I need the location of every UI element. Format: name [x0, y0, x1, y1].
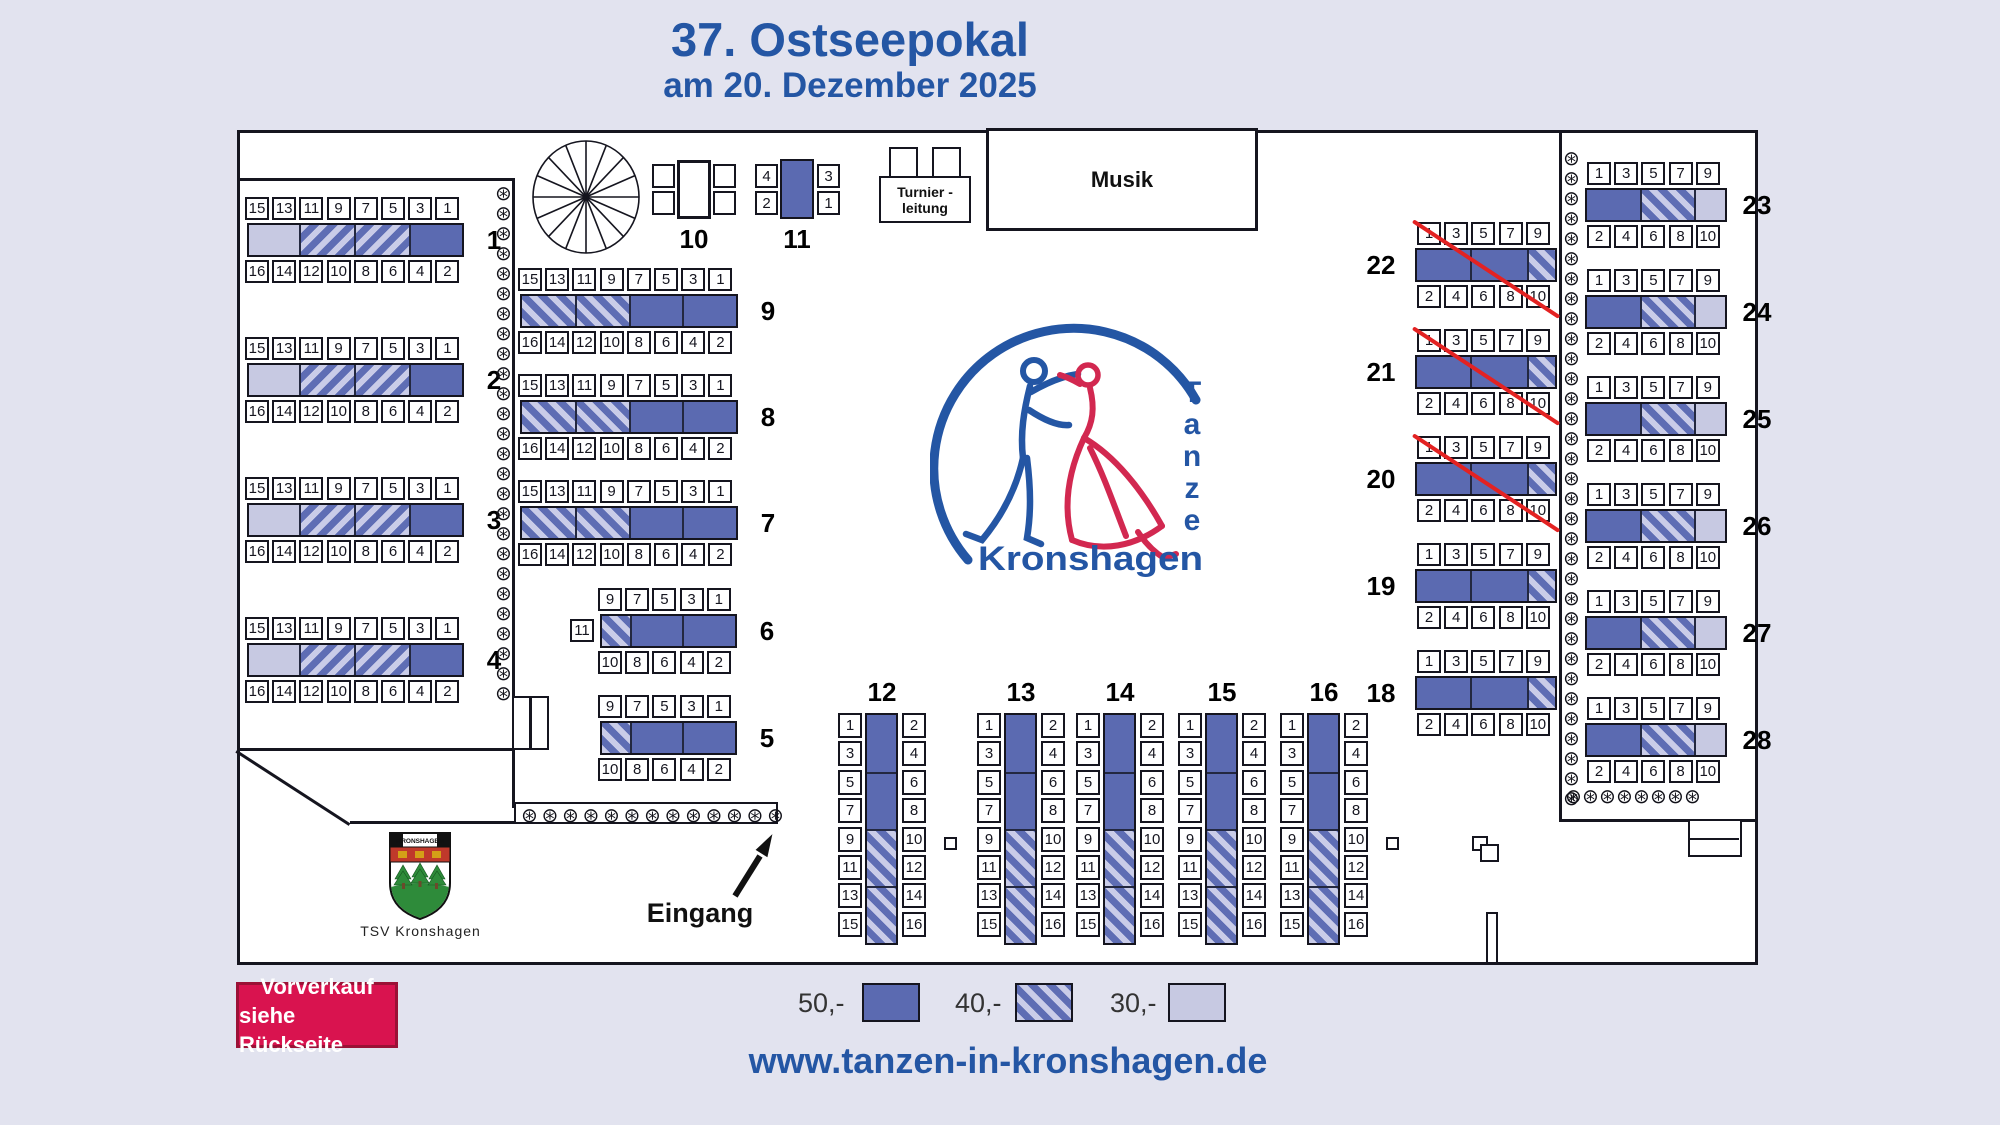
- seat[interactable]: 4: [1242, 741, 1266, 766]
- seat[interactable]: 10: [902, 827, 926, 852]
- seat[interactable]: 13: [1076, 883, 1100, 908]
- seat[interactable]: 3: [681, 480, 705, 503]
- seat[interactable]: 8: [627, 331, 651, 354]
- seat[interactable]: 1: [1280, 713, 1304, 738]
- seat[interactable]: 4: [1614, 760, 1638, 783]
- seat[interactable]: 15: [1178, 912, 1202, 937]
- seat[interactable]: 8: [1499, 713, 1523, 736]
- seat[interactable]: 6: [1641, 760, 1665, 783]
- seat[interactable]: 10: [1344, 827, 1368, 852]
- seat[interactable]: 15: [245, 197, 269, 220]
- seat[interactable]: 9: [600, 374, 624, 397]
- seat[interactable]: 3: [1444, 543, 1468, 566]
- seat[interactable]: 11: [572, 374, 596, 397]
- seat[interactable]: 6: [381, 260, 405, 283]
- seat[interactable]: 8: [1669, 332, 1693, 355]
- seat[interactable]: 8: [1041, 798, 1065, 823]
- seat[interactable]: 7: [354, 337, 378, 360]
- seat[interactable]: 10: [1696, 439, 1720, 462]
- seat[interactable]: 11: [299, 477, 323, 500]
- seat[interactable]: 12: [299, 260, 323, 283]
- seat[interactable]: 8: [1344, 798, 1368, 823]
- seat[interactable]: 13: [545, 374, 569, 397]
- seat[interactable]: 16: [1041, 912, 1065, 937]
- seat[interactable]: 1: [1587, 483, 1611, 506]
- seat[interactable]: 14: [545, 331, 569, 354]
- seat[interactable]: 2: [1587, 546, 1611, 569]
- seat[interactable]: 4: [1614, 439, 1638, 462]
- seat[interactable]: 6: [1041, 770, 1065, 795]
- seat[interactable]: 9: [1526, 436, 1550, 459]
- seat[interactable]: 3: [408, 197, 432, 220]
- seat[interactable]: 12: [299, 540, 323, 563]
- seat[interactable]: 5: [1471, 436, 1495, 459]
- seat[interactable]: 11: [1178, 855, 1202, 880]
- seat[interactable]: 13: [1280, 883, 1304, 908]
- seat[interactable]: 5: [1471, 222, 1495, 245]
- seat[interactable]: 11: [1280, 855, 1304, 880]
- seat[interactable]: 7: [977, 798, 1001, 823]
- seat[interactable]: 10: [1041, 827, 1065, 852]
- seat[interactable]: 2: [1417, 499, 1441, 522]
- seat[interactable]: 14: [272, 260, 296, 283]
- seat[interactable]: 15: [518, 480, 542, 503]
- seat[interactable]: 4: [1444, 285, 1468, 308]
- seat[interactable]: 10: [1140, 827, 1164, 852]
- seat[interactable]: 9: [977, 827, 1001, 852]
- seat[interactable]: 3: [681, 374, 705, 397]
- seat[interactable]: 16: [518, 543, 542, 566]
- seat[interactable]: 13: [272, 477, 296, 500]
- seat[interactable]: 4: [1444, 713, 1468, 736]
- seat[interactable]: 5: [654, 374, 678, 397]
- seat[interactable]: 4: [681, 437, 705, 460]
- seat[interactable]: 11: [572, 480, 596, 503]
- seat[interactable]: 5: [381, 477, 405, 500]
- seat[interactable]: 9: [1076, 827, 1100, 852]
- seat[interactable]: 15: [518, 268, 542, 291]
- seat[interactable]: 3: [1444, 650, 1468, 673]
- seat[interactable]: 9: [1696, 697, 1720, 720]
- seat[interactable]: 6: [1641, 546, 1665, 569]
- seat[interactable]: 4: [1140, 741, 1164, 766]
- seat[interactable]: 9: [327, 617, 351, 640]
- seat[interactable]: 2: [708, 437, 732, 460]
- seat[interactable]: 9: [1526, 650, 1550, 673]
- seat[interactable]: 5: [381, 197, 405, 220]
- seat[interactable]: 6: [381, 400, 405, 423]
- seat[interactable]: 1: [435, 197, 459, 220]
- seat[interactable]: 12: [572, 437, 596, 460]
- seat[interactable]: 10: [1696, 546, 1720, 569]
- seat[interactable]: 2: [435, 680, 459, 703]
- seat[interactable]: 9: [1696, 590, 1720, 613]
- seat[interactable]: 6: [902, 770, 926, 795]
- seat[interactable]: 7: [1499, 543, 1523, 566]
- seat[interactable]: 5: [1076, 770, 1100, 795]
- seat[interactable]: 3: [408, 617, 432, 640]
- seat[interactable]: 10: [1526, 499, 1550, 522]
- seat[interactable]: 8: [902, 798, 926, 823]
- seat[interactable]: 7: [627, 268, 651, 291]
- seat[interactable]: 10: [1696, 225, 1720, 248]
- seat[interactable]: 7: [627, 374, 651, 397]
- seat[interactable]: 8: [354, 540, 378, 563]
- seat[interactable]: 4: [1444, 606, 1468, 629]
- seat[interactable]: 6: [1641, 332, 1665, 355]
- seat[interactable]: 15: [245, 617, 269, 640]
- seat[interactable]: 3: [408, 477, 432, 500]
- seat[interactable]: 7: [625, 588, 649, 611]
- seat[interactable]: 2: [1587, 653, 1611, 676]
- seat[interactable]: 8: [354, 400, 378, 423]
- seat[interactable]: 6: [654, 543, 678, 566]
- seat[interactable]: 4: [408, 260, 432, 283]
- seat[interactable]: 5: [654, 480, 678, 503]
- seat[interactable]: 5: [654, 268, 678, 291]
- seat[interactable]: 2: [1587, 332, 1611, 355]
- seat[interactable]: 1: [1587, 376, 1611, 399]
- seat[interactable]: 6: [381, 680, 405, 703]
- seat[interactable]: 1: [1587, 269, 1611, 292]
- seat[interactable]: 4: [408, 540, 432, 563]
- seat[interactable]: 3: [1444, 222, 1468, 245]
- seat[interactable]: 9: [1280, 827, 1304, 852]
- seat[interactable]: 6: [381, 540, 405, 563]
- seat[interactable]: 3: [680, 695, 704, 718]
- seat[interactable]: 5: [1641, 376, 1665, 399]
- seat[interactable]: 5: [1471, 543, 1495, 566]
- seat[interactable]: 16: [1242, 912, 1266, 937]
- seat[interactable]: 9: [327, 197, 351, 220]
- seat[interactable]: 6: [1242, 770, 1266, 795]
- seat[interactable]: 8: [354, 680, 378, 703]
- seat[interactable]: 12: [572, 331, 596, 354]
- seat[interactable]: 14: [1242, 883, 1266, 908]
- seat[interactable]: 7: [354, 617, 378, 640]
- seat[interactable]: 7: [627, 480, 651, 503]
- seat[interactable]: 3: [1614, 697, 1638, 720]
- seat[interactable]: 5: [652, 588, 676, 611]
- seat[interactable]: 7: [1499, 436, 1523, 459]
- seat[interactable]: 6: [1471, 392, 1495, 415]
- seat[interactable]: 6: [1471, 606, 1495, 629]
- seat[interactable]: 3: [1614, 269, 1638, 292]
- seat[interactable]: 3: [1076, 741, 1100, 766]
- seat[interactable]: 2: [1587, 439, 1611, 462]
- seat[interactable]: 14: [902, 883, 926, 908]
- seat[interactable]: 1: [838, 713, 862, 738]
- seat[interactable]: 9: [1526, 222, 1550, 245]
- seat[interactable]: 13: [545, 268, 569, 291]
- seat[interactable]: 15: [977, 912, 1001, 937]
- seat[interactable]: 1: [435, 477, 459, 500]
- seat[interactable]: 15: [1280, 912, 1304, 937]
- seat[interactable]: 5: [1178, 770, 1202, 795]
- seat[interactable]: 7: [1076, 798, 1100, 823]
- seat[interactable]: 7: [1669, 697, 1693, 720]
- seat[interactable]: 8: [1499, 606, 1523, 629]
- seat[interactable]: 14: [272, 680, 296, 703]
- seat[interactable]: 10: [1696, 653, 1720, 676]
- seat[interactable]: 5: [381, 337, 405, 360]
- seat[interactable]: 1: [707, 588, 731, 611]
- seat[interactable]: 4: [408, 400, 432, 423]
- seat[interactable]: 14: [1140, 883, 1164, 908]
- seat[interactable]: 2: [708, 331, 732, 354]
- seat[interactable]: 7: [1669, 483, 1693, 506]
- seat[interactable]: 15: [245, 337, 269, 360]
- seat[interactable]: 4: [1444, 392, 1468, 415]
- seat[interactable]: 8: [1669, 439, 1693, 462]
- seat[interactable]: 12: [902, 855, 926, 880]
- seat[interactable]: 16: [245, 540, 269, 563]
- seat[interactable]: 5: [1471, 650, 1495, 673]
- seat[interactable]: 7: [1669, 590, 1693, 613]
- seat[interactable]: 3: [1178, 741, 1202, 766]
- seat[interactable]: 4: [408, 680, 432, 703]
- seat[interactable]: 16: [1344, 912, 1368, 937]
- seat[interactable]: 3: [1614, 483, 1638, 506]
- seat[interactable]: 1: [708, 480, 732, 503]
- seat[interactable]: 10: [1526, 606, 1550, 629]
- seat[interactable]: 13: [1178, 883, 1202, 908]
- seat[interactable]: 1: [707, 695, 731, 718]
- seat[interactable]: 10: [1696, 332, 1720, 355]
- seat[interactable]: 10: [598, 758, 622, 781]
- seat[interactable]: 13: [545, 480, 569, 503]
- seat[interactable]: 14: [545, 543, 569, 566]
- seat[interactable]: 7: [354, 477, 378, 500]
- seat[interactable]: 2: [1587, 760, 1611, 783]
- seat[interactable]: 9: [838, 827, 862, 852]
- seat[interactable]: 7: [1280, 798, 1304, 823]
- seat[interactable]: 10: [600, 331, 624, 354]
- seat[interactable]: 4: [1344, 741, 1368, 766]
- seat[interactable]: 16: [1140, 912, 1164, 937]
- seat[interactable]: 7: [1178, 798, 1202, 823]
- seat[interactable]: 8: [627, 437, 651, 460]
- seat[interactable]: 1: [1587, 697, 1611, 720]
- seat[interactable]: 11: [838, 855, 862, 880]
- seat[interactable]: 7: [838, 798, 862, 823]
- seat[interactable]: 6: [1140, 770, 1164, 795]
- seat[interactable]: 11: [977, 855, 1001, 880]
- seat[interactable]: 16: [518, 437, 542, 460]
- seat[interactable]: 1: [708, 374, 732, 397]
- seat[interactable]: 2: [708, 543, 732, 566]
- seat[interactable]: 3: [1614, 162, 1638, 185]
- seat[interactable]: 9: [600, 480, 624, 503]
- seat[interactable]: 16: [245, 260, 269, 283]
- seat[interactable]: 15: [1076, 912, 1100, 937]
- seat[interactable]: 9: [327, 337, 351, 360]
- seat[interactable]: 10: [1526, 392, 1550, 415]
- seat[interactable]: 14: [272, 540, 296, 563]
- seat[interactable]: 6: [1471, 713, 1495, 736]
- seat[interactable]: 9: [1178, 827, 1202, 852]
- seat[interactable]: 10: [1696, 760, 1720, 783]
- seat[interactable]: 7: [1669, 376, 1693, 399]
- seat[interactable]: 6: [1471, 499, 1495, 522]
- seat[interactable]: 4: [1614, 225, 1638, 248]
- seat[interactable]: 4: [1041, 741, 1065, 766]
- seat[interactable]: 12: [1140, 855, 1164, 880]
- seat[interactable]: 7: [1499, 329, 1523, 352]
- seat[interactable]: 1: [1587, 162, 1611, 185]
- seat[interactable]: 6: [654, 331, 678, 354]
- seat[interactable]: 7: [1499, 650, 1523, 673]
- seat[interactable]: 9: [1526, 543, 1550, 566]
- seat[interactable]: 1: [435, 617, 459, 640]
- seat[interactable]: 15: [518, 374, 542, 397]
- seat[interactable]: 14: [1344, 883, 1368, 908]
- seat[interactable]: 10: [598, 651, 622, 674]
- seat[interactable]: 7: [625, 695, 649, 718]
- seat[interactable]: 1: [1076, 713, 1100, 738]
- seat[interactable]: 5: [838, 770, 862, 795]
- seat[interactable]: 14: [272, 400, 296, 423]
- seat[interactable]: 11: [572, 268, 596, 291]
- seat[interactable]: 2: [1242, 713, 1266, 738]
- seat[interactable]: 4: [902, 741, 926, 766]
- seat[interactable]: 9: [1696, 269, 1720, 292]
- seat[interactable]: 10: [600, 543, 624, 566]
- seat[interactable]: 5: [1280, 770, 1304, 795]
- seat[interactable]: 7: [1669, 162, 1693, 185]
- seat[interactable]: 3: [1614, 590, 1638, 613]
- seat[interactable]: 10: [327, 680, 351, 703]
- seat[interactable]: 16: [902, 912, 926, 937]
- seat[interactable]: 5: [1641, 590, 1665, 613]
- seat[interactable]: 6: [1641, 225, 1665, 248]
- seat[interactable]: 3: [1444, 329, 1468, 352]
- seat[interactable]: 4: [1614, 653, 1638, 676]
- seat[interactable]: 8: [627, 543, 651, 566]
- seat[interactable]: 4: [1614, 332, 1638, 355]
- seat[interactable]: 13: [838, 883, 862, 908]
- seat[interactable]: 10: [327, 540, 351, 563]
- seat[interactable]: 1: [708, 268, 732, 291]
- seat[interactable]: 2: [1417, 392, 1441, 415]
- seat[interactable]: 4: [680, 651, 704, 674]
- seat[interactable]: 6: [652, 758, 676, 781]
- seat[interactable]: 9: [598, 588, 622, 611]
- seat[interactable]: 12: [1344, 855, 1368, 880]
- seat[interactable]: 9: [1526, 329, 1550, 352]
- seat[interactable]: 8: [1669, 653, 1693, 676]
- seat[interactable]: 5: [652, 695, 676, 718]
- seat[interactable]: 3: [408, 337, 432, 360]
- seat[interactable]: 12: [299, 400, 323, 423]
- seat[interactable]: 2: [1140, 713, 1164, 738]
- seat[interactable]: 3: [1614, 376, 1638, 399]
- seat[interactable]: 6: [1344, 770, 1368, 795]
- seat[interactable]: 1: [1417, 329, 1441, 352]
- seat[interactable]: 1: [1417, 543, 1441, 566]
- seat[interactable]: 16: [245, 400, 269, 423]
- seat[interactable]: 4: [680, 758, 704, 781]
- seat[interactable]: 9: [1696, 376, 1720, 399]
- seat[interactable]: 14: [1041, 883, 1065, 908]
- seat[interactable]: 3: [1280, 741, 1304, 766]
- seat[interactable]: 13: [272, 337, 296, 360]
- seat[interactable]: 10: [600, 437, 624, 460]
- seat[interactable]: 7: [354, 197, 378, 220]
- seat[interactable]: 13: [272, 617, 296, 640]
- seat[interactable]: 12: [1041, 855, 1065, 880]
- seat[interactable]: 12: [299, 680, 323, 703]
- seat[interactable]: 5: [1641, 483, 1665, 506]
- seat[interactable]: 6: [1641, 653, 1665, 676]
- seat[interactable]: 5: [1641, 162, 1665, 185]
- seat[interactable]: 5: [977, 770, 1001, 795]
- seat[interactable]: 8: [1669, 225, 1693, 248]
- seat[interactable]: 8: [1669, 546, 1693, 569]
- seat[interactable]: 2: [1417, 285, 1441, 308]
- seat[interactable]: 8: [354, 260, 378, 283]
- seat[interactable]: 11: [299, 617, 323, 640]
- seat[interactable]: 5: [381, 617, 405, 640]
- seat[interactable]: 2: [902, 713, 926, 738]
- seat[interactable]: 2: [1041, 713, 1065, 738]
- seat[interactable]: 13: [977, 883, 1001, 908]
- seat[interactable]: 11: [1076, 855, 1100, 880]
- seat[interactable]: 11: [299, 337, 323, 360]
- seat[interactable]: 2: [435, 260, 459, 283]
- seat[interactable]: 4: [1444, 499, 1468, 522]
- seat[interactable]: 2: [707, 651, 731, 674]
- seat[interactable]: 3: [680, 588, 704, 611]
- seat[interactable]: 1: [1178, 713, 1202, 738]
- seat[interactable]: 14: [545, 437, 569, 460]
- seat[interactable]: 3: [681, 268, 705, 291]
- seat[interactable]: 2: [707, 758, 731, 781]
- seat[interactable]: 1: [435, 337, 459, 360]
- seat[interactable]: 2: [1344, 713, 1368, 738]
- seat[interactable]: 8: [1242, 798, 1266, 823]
- seat[interactable]: 1: [1587, 590, 1611, 613]
- seat[interactable]: 3: [977, 741, 1001, 766]
- seat[interactable]: 10: [327, 400, 351, 423]
- seat[interactable]: 3: [1444, 436, 1468, 459]
- seat[interactable]: 4: [681, 543, 705, 566]
- seat[interactable]: 8: [1499, 499, 1523, 522]
- seat[interactable]: 13: [272, 197, 296, 220]
- seat[interactable]: 10: [1526, 285, 1550, 308]
- seat[interactable]: 2: [1417, 713, 1441, 736]
- seat[interactable]: 8: [1140, 798, 1164, 823]
- seat[interactable]: 7: [1499, 222, 1523, 245]
- seat[interactable]: 8: [625, 758, 649, 781]
- seat[interactable]: 5: [1641, 269, 1665, 292]
- seat[interactable]: 12: [572, 543, 596, 566]
- seat[interactable]: 11: [299, 197, 323, 220]
- seat[interactable]: 9: [600, 268, 624, 291]
- seat[interactable]: 6: [652, 651, 676, 674]
- seat[interactable]: 10: [1242, 827, 1266, 852]
- seat[interactable]: 10: [1526, 713, 1550, 736]
- seat[interactable]: 8: [1669, 760, 1693, 783]
- seat[interactable]: 8: [625, 651, 649, 674]
- seat[interactable]: 15: [245, 477, 269, 500]
- seat[interactable]: 11: [570, 619, 594, 642]
- seat[interactable]: 16: [518, 331, 542, 354]
- seat[interactable]: 1: [977, 713, 1001, 738]
- seat[interactable]: 1: [1417, 436, 1441, 459]
- seat[interactable]: 6: [1471, 285, 1495, 308]
- seat[interactable]: 16: [245, 680, 269, 703]
